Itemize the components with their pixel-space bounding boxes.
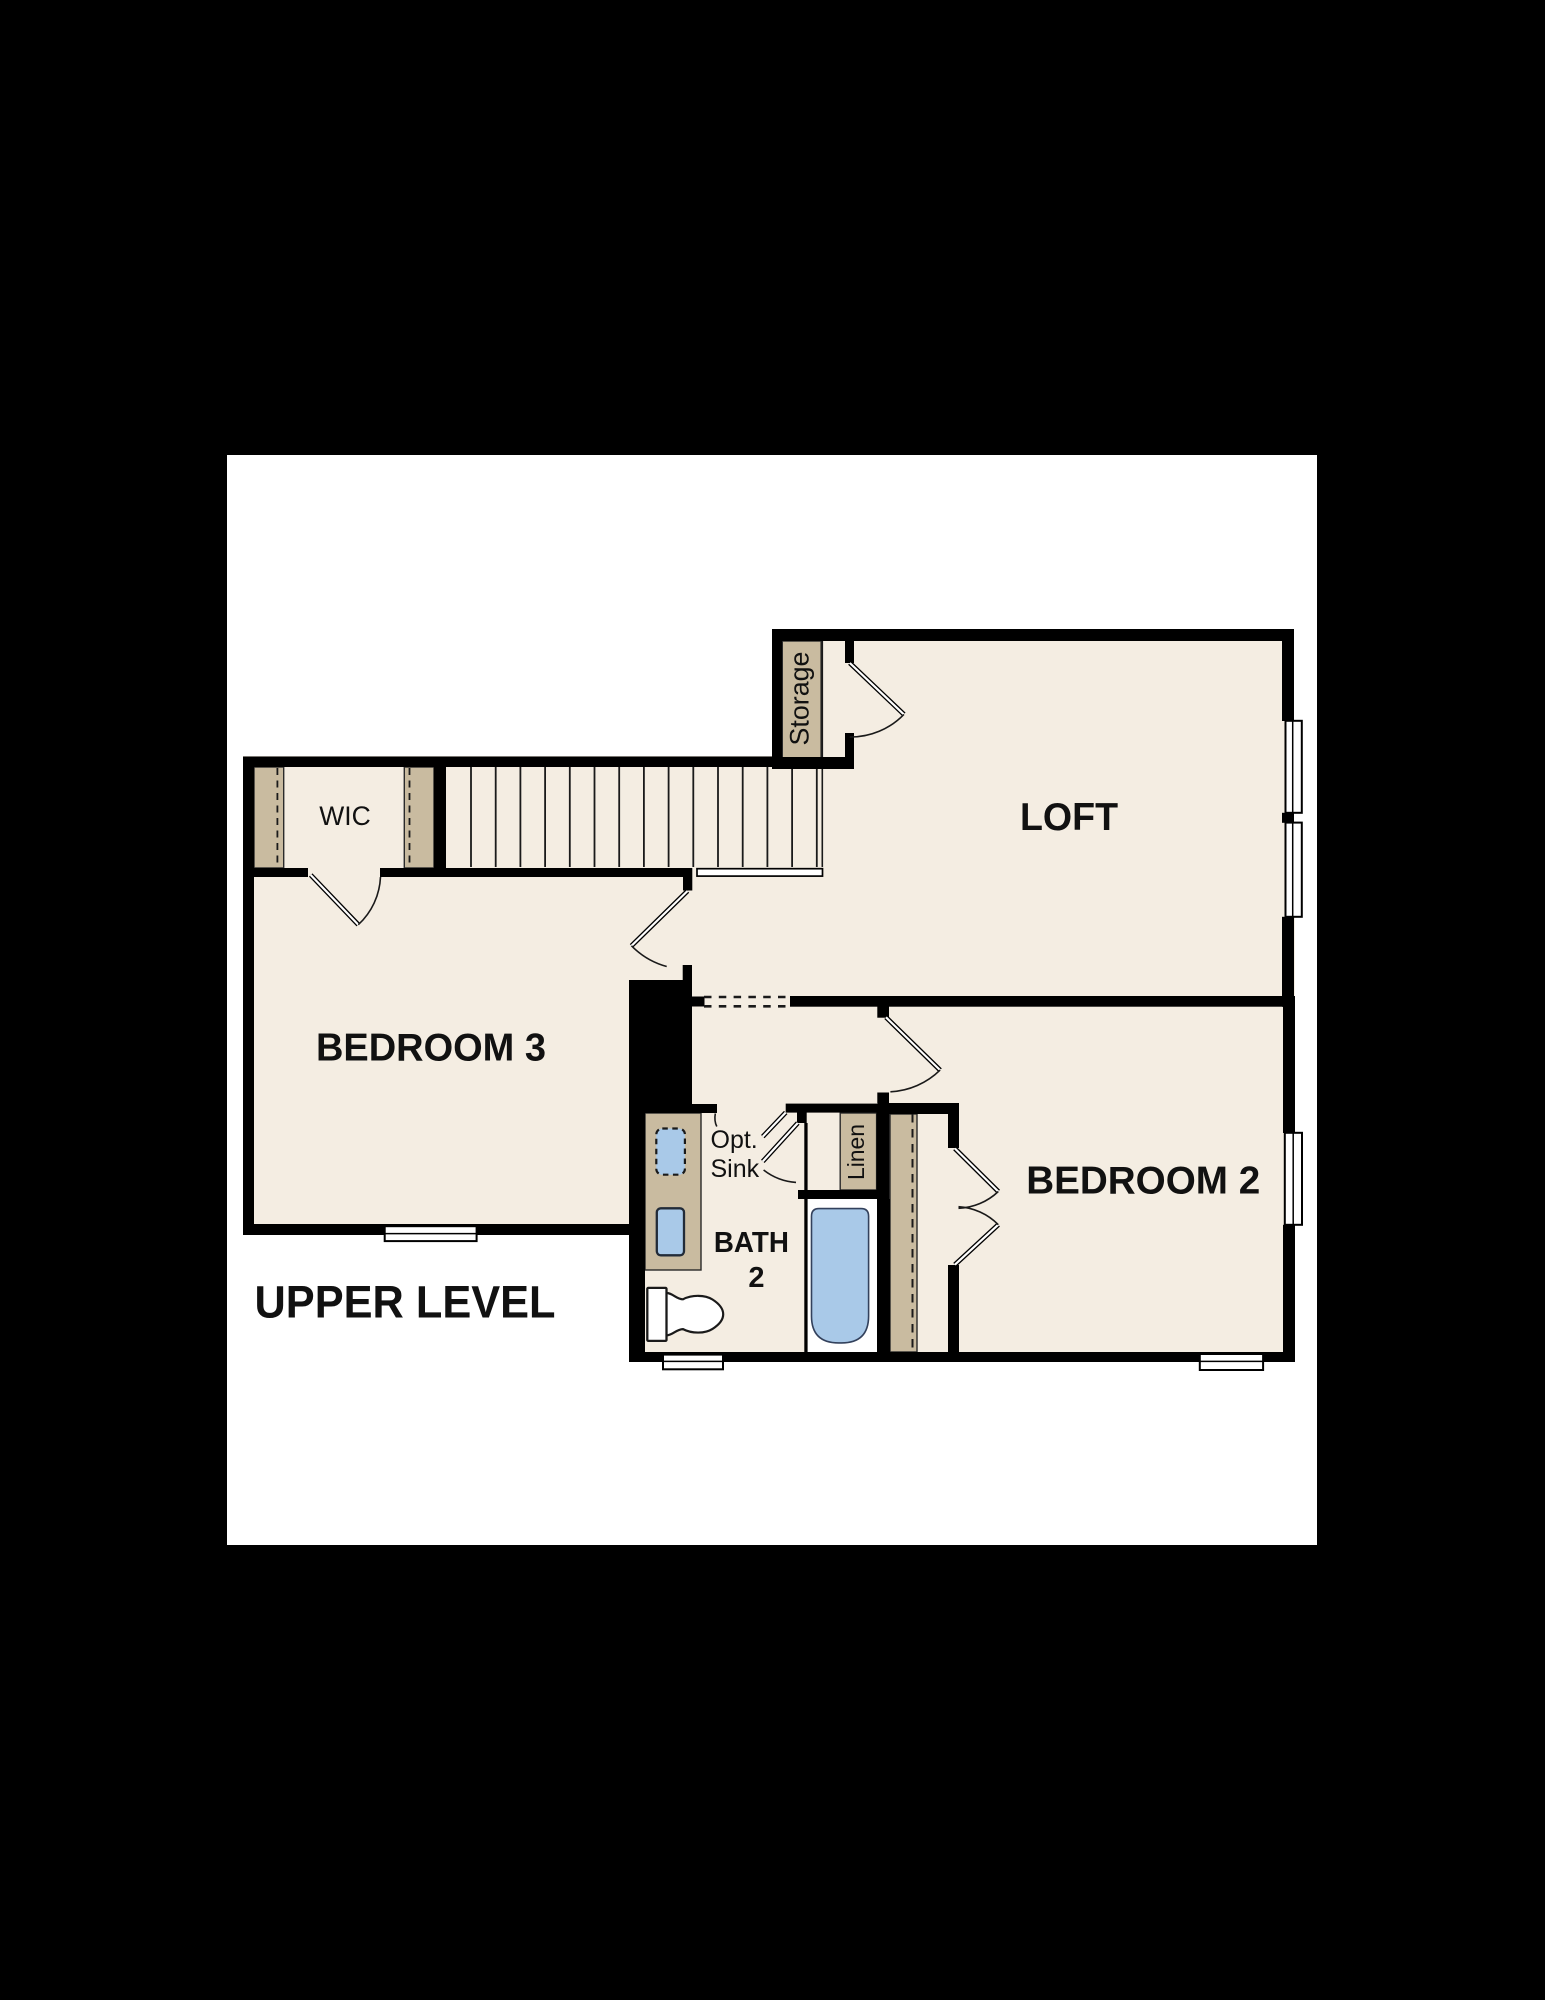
svg-text:Sink: Sink	[711, 1155, 760, 1183]
svg-text:WIC: WIC	[319, 801, 371, 831]
svg-text:LOFT: LOFT	[1020, 796, 1118, 839]
svg-text:Linen: Linen	[843, 1124, 869, 1180]
svg-text:2: 2	[748, 1262, 764, 1294]
svg-text:BATH: BATH	[714, 1227, 789, 1259]
svg-text:UPPER LEVEL: UPPER LEVEL	[255, 1277, 556, 1328]
svg-text:BEDROOM 2: BEDROOM 2	[1026, 1160, 1260, 1203]
svg-text:Storage: Storage	[785, 652, 815, 746]
svg-text:BEDROOM 3: BEDROOM 3	[316, 1027, 546, 1070]
svg-text:Opt.: Opt.	[711, 1126, 758, 1154]
